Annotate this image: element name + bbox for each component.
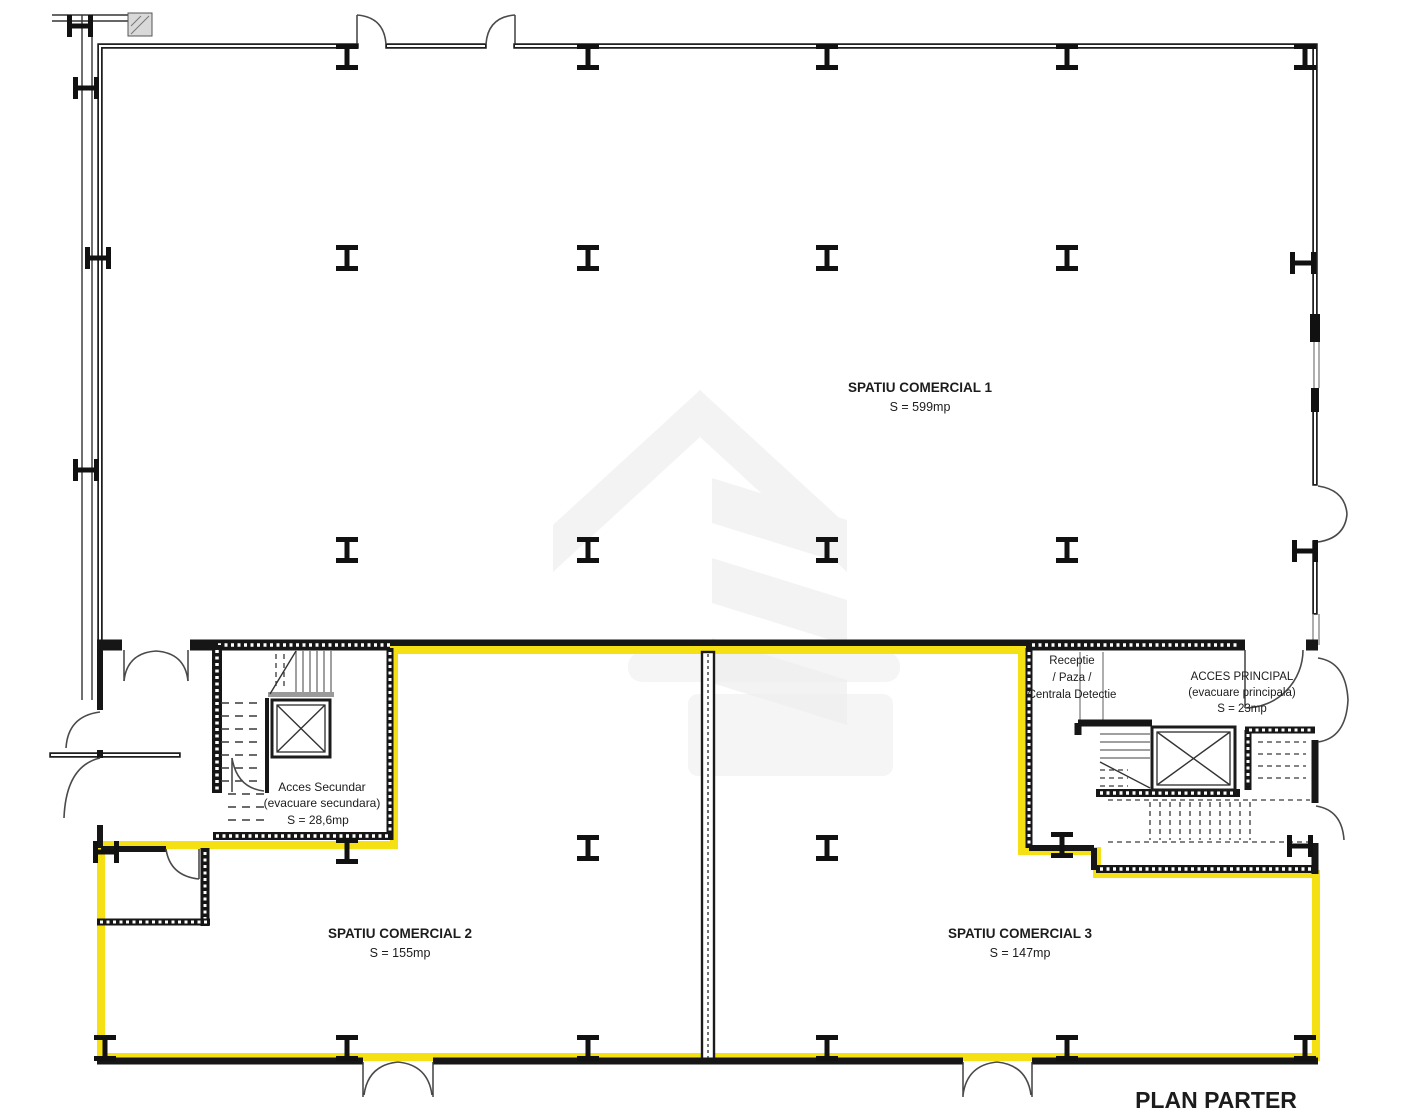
column-icon [1056, 245, 1078, 271]
column-icon [1292, 540, 1318, 562]
column-icon [816, 44, 838, 70]
door-swing-icon [357, 15, 386, 44]
plan-title: PLAN PARTER [1135, 1087, 1297, 1113]
bottom-doors [363, 1062, 1032, 1097]
stairs-dashed-icon [221, 703, 268, 820]
column-icon [1290, 252, 1316, 274]
column-icon [577, 44, 599, 70]
commercial3-name: SPATIU COMERCIAL 3 [948, 926, 1093, 941]
secondary-access-name: Acces Secundar [278, 780, 365, 794]
column-icon [1056, 44, 1078, 70]
column-icon [816, 835, 838, 861]
column-icon [336, 44, 358, 70]
column-icon [336, 245, 358, 271]
commercial2-area: S = 155mp [370, 946, 431, 960]
stairs-icon [268, 650, 334, 697]
secondary-access-note: (evacuare secundara) [264, 796, 381, 810]
door-swing-icon [124, 650, 188, 681]
structural-columns [67, 15, 1318, 1061]
door-swing-icon [166, 849, 199, 879]
floor-plan-drawing: SPATIU COMERCIAL 1 S = 599mp SPATIU COME… [0, 0, 1419, 1120]
column-icon [336, 537, 358, 563]
door-swing-icon [1318, 486, 1347, 542]
stairs-icon [1100, 734, 1150, 788]
door-swing-icon [486, 15, 515, 44]
door-swing-icon [963, 1062, 1032, 1097]
column-icon [73, 459, 99, 481]
door-swing-icon [363, 1062, 433, 1097]
column-icon [577, 835, 599, 861]
door-swing-icon [1318, 658, 1348, 742]
door-swing-icon [64, 712, 100, 818]
main-access-note: (evacuare principala) [1188, 687, 1296, 699]
elevator-shaft-icon [272, 700, 330, 757]
column-icon [577, 245, 599, 271]
reception-label-1: Receptie [1049, 655, 1094, 667]
commercial1-area: S = 599mp [890, 400, 951, 414]
main-access-name: ACCES PRINCIPAL [1191, 671, 1294, 683]
reception-label-3: Centrala Detectie [1028, 689, 1117, 701]
left-vestibule [52, 645, 188, 848]
column-icon [816, 1035, 838, 1061]
small-room [97, 848, 210, 926]
commercial3-area: S = 147mp [990, 946, 1051, 960]
column-icon [577, 1035, 599, 1061]
elevator-shaft-icon [1152, 727, 1235, 790]
divider-wall [702, 652, 714, 1062]
column-icon [73, 77, 99, 99]
commercial1-name: SPATIU COMERCIAL 1 [848, 380, 993, 395]
column-icon [577, 537, 599, 563]
door-swing-icon [1316, 806, 1344, 840]
column-icon [816, 245, 838, 271]
vestibule-dashes [1108, 800, 1310, 842]
hall-doors [357, 15, 1347, 542]
column-icon [67, 15, 93, 37]
column-icon [336, 838, 358, 864]
secondary-access-area: S = 28,6mp [287, 813, 349, 827]
perimeter-walls [100, 46, 1320, 645]
floor-plan: SPATIU COMERCIAL 1 S = 599mp SPATIU COME… [0, 0, 1419, 1120]
commercial2-name: SPATIU COMERCIAL 2 [328, 926, 472, 941]
column-icon [1287, 835, 1313, 857]
main-access-area: S = 23mp [1217, 703, 1267, 715]
column-icon [1056, 1035, 1078, 1061]
column-icon [336, 1035, 358, 1061]
reception-label-2: / Paza / [1053, 672, 1093, 684]
column-icon [1056, 537, 1078, 563]
secondary-access-block [213, 645, 393, 840]
brand-watermark-icon [553, 390, 900, 776]
door-swing-icon [232, 758, 264, 792]
